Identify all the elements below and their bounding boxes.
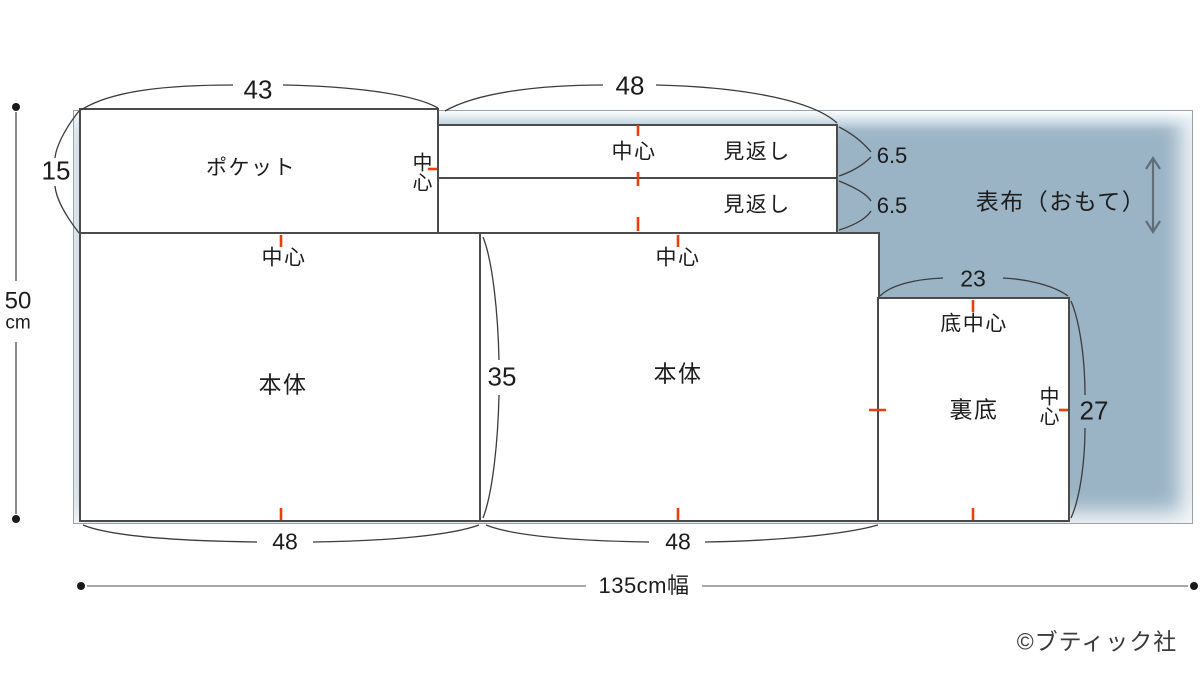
facing-top-center-label: 中心 [612, 140, 657, 163]
body-left-center-label: 中心 [262, 246, 307, 269]
fabric-width-label: 135cm幅 [598, 574, 689, 598]
dim-65-top: 6.5 [877, 144, 908, 168]
pocket-center-label: 中心 [410, 152, 430, 192]
dimension-end-dot [12, 103, 20, 111]
facing-bottom-label: 見返し [723, 193, 791, 216]
dim-50cm: 50cm [5, 288, 32, 333]
lining-bottom-label: 裏底 [950, 397, 999, 422]
dim-48-bottom-left: 48 [272, 529, 298, 554]
pocket-label: ポケット [206, 156, 296, 179]
body-right-center-label: 中心 [656, 246, 701, 269]
dim-23: 23 [960, 266, 986, 291]
body-left-label: 本体 [259, 372, 308, 397]
fabric-label: 表布（おもて） [976, 189, 1147, 214]
dim-15: 15 [42, 157, 71, 186]
dim-27: 27 [1080, 397, 1109, 426]
dim-43: 43 [244, 76, 273, 105]
dimension-end-dot [1190, 582, 1198, 590]
cutting-layout-diagram: ポケット 中心 中心 見返し 見返し 表布（おもて） 中心 本体 中心 本体 底… [0, 0, 1200, 675]
dimension-end-dot [12, 515, 20, 523]
lining-bottom-top-center-label: 底中心 [940, 312, 1008, 335]
dimension-end-dot [77, 582, 85, 590]
dim-48-top: 48 [616, 72, 645, 101]
copyright-notice: ©ブティック社 [1017, 629, 1178, 654]
lining-bottom-center-label: 中心 [1037, 386, 1057, 426]
body-right-label: 本体 [654, 361, 703, 386]
dim-65-bottom: 6.5 [877, 194, 908, 218]
dim-35: 35 [488, 363, 517, 392]
dim-50-value: 50 [5, 288, 32, 313]
dim-48-bottom-right: 48 [665, 529, 691, 554]
facing-top-label: 見返し [723, 140, 791, 163]
dim-50-unit: cm [5, 314, 32, 334]
